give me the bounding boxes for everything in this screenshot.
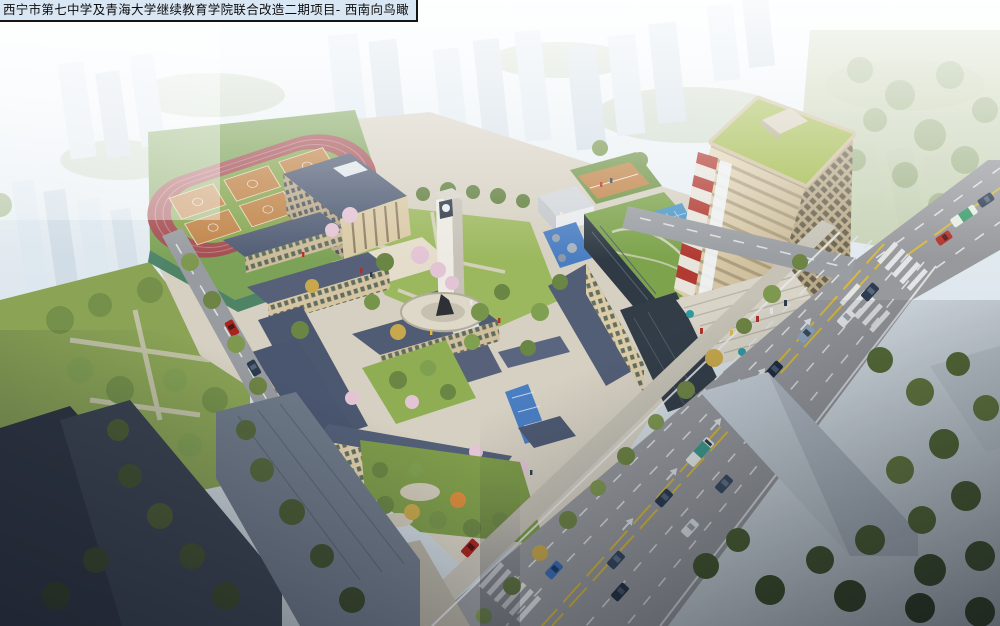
vignette-bottom-right [480,300,1000,626]
project-title: 西宁市第七中学及青海大学继续教育学院联合改造二期项目- 西南向鸟瞰 [0,0,418,22]
rendering-viewport: 西宁市第七中学及青海大学继续教育学院联合改造二期项目- 西南向鸟瞰 [0,0,1000,626]
haze-left [0,0,220,220]
aerial-rendering [0,0,1000,626]
vignette-bottom-left [0,330,520,626]
